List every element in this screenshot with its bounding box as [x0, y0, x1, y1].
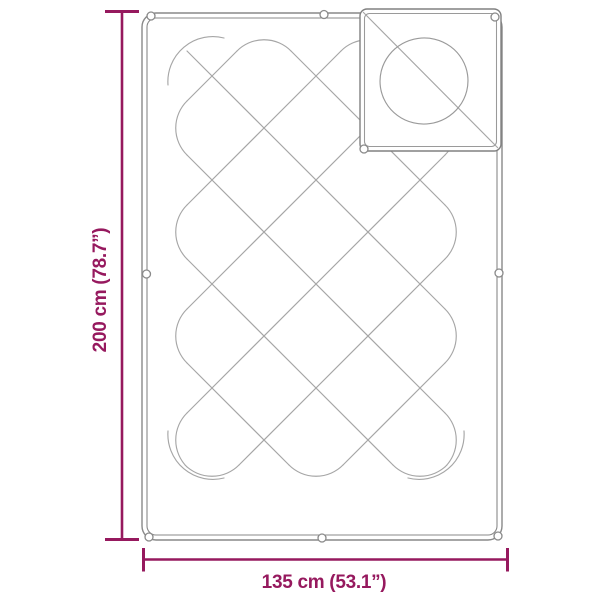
- grommet: [145, 533, 153, 541]
- pillow: [360, 9, 501, 153]
- product-dimension-diagram: 200 cm (78.7”) 135 cm (53.1”): [0, 0, 600, 600]
- grommet: [320, 11, 328, 19]
- grommet: [494, 532, 502, 540]
- grommet: [318, 534, 326, 542]
- height-dimension-label: 200 cm (78.7”): [90, 228, 112, 353]
- width-dimension-line: [144, 548, 508, 572]
- grommet: [360, 145, 368, 153]
- grommet: [495, 269, 503, 277]
- grommet: [491, 13, 499, 21]
- grommet: [143, 270, 151, 278]
- grommet: [147, 12, 155, 20]
- width-dimension-label: 135 cm (53.1”): [262, 572, 387, 594]
